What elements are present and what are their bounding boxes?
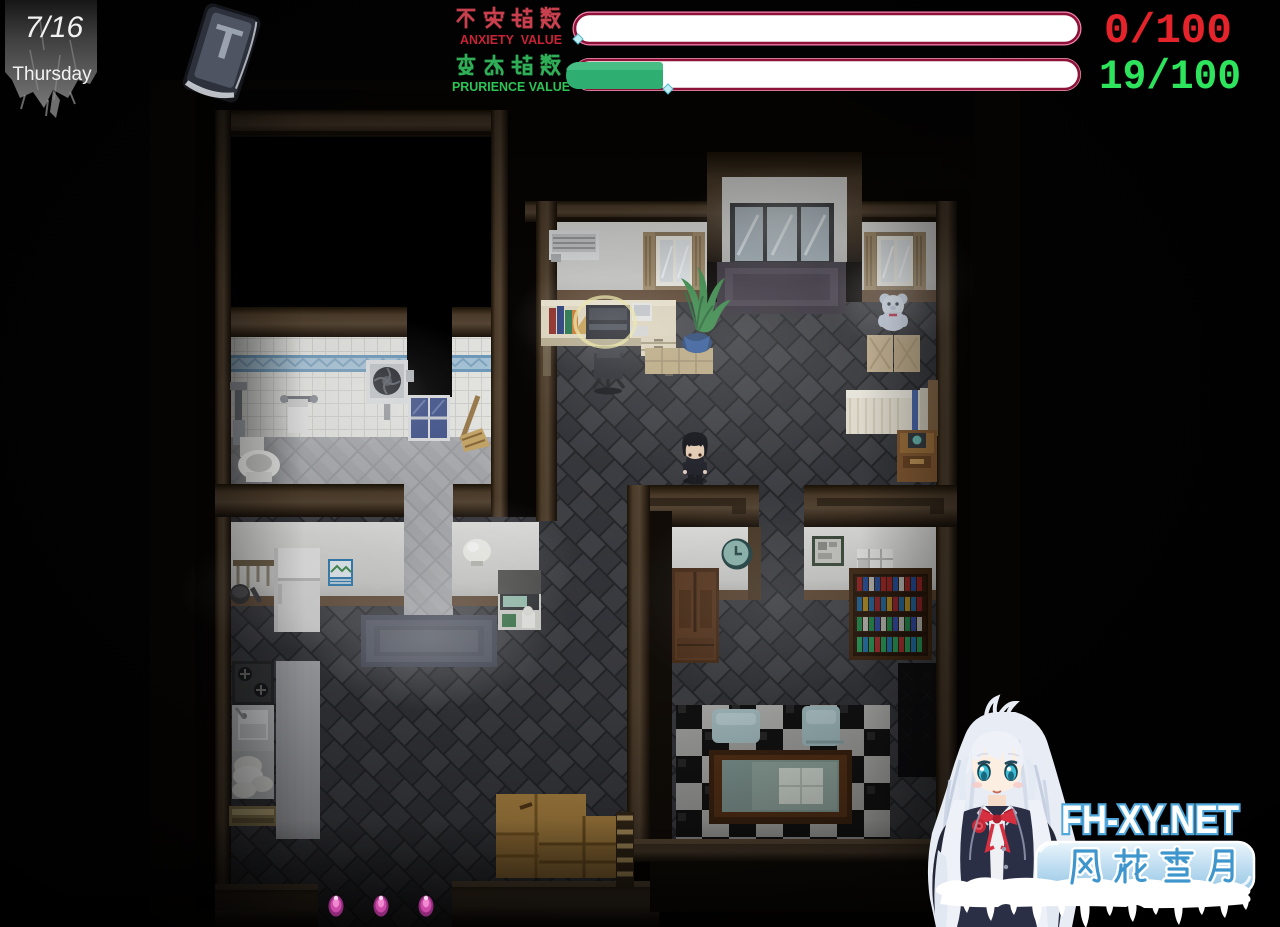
svg-text:PRURIENCE VALUE: PRURIENCE VALUE (452, 79, 570, 94)
svg-text:19/100: 19/100 (1099, 53, 1241, 101)
svg-text:FH-XY.NET: FH-XY.NET (1061, 798, 1239, 842)
svg-text:7/16: 7/16 (25, 11, 84, 44)
svg-text:0/100: 0/100 (1104, 7, 1232, 55)
svg-text:Thursday: Thursday (12, 64, 92, 85)
svg-text:ANXIETY VALUE: ANXIETY VALUE (460, 32, 562, 47)
